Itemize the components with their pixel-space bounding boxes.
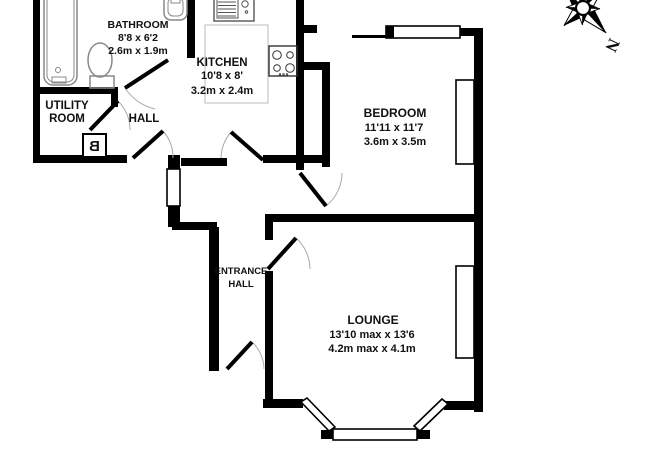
compass-rose-icon: N [546,0,625,55]
door-leaf [90,101,118,130]
door-front [227,342,264,369]
compass-north-label: N [601,36,624,56]
room-label-entrance-hall-line1: ENTRANCE [215,266,268,277]
wall-segment [265,214,273,240]
room-dims-bedroom-metric: 3.6m x 3.5m [364,136,427,148]
room-label-bedroom: BEDROOM [364,106,427,120]
room-dims-lounge-metric: 4.2m max x 4.1m [328,343,416,355]
wall-segment [33,155,127,163]
room-label-hall: HALL [129,113,160,125]
hob-icon [269,46,297,76]
floorplan-drawing: B [0,0,650,450]
room-labels: BATHROOM 8'8 x 6'2 2.6m x 1.9m UTILITY R… [45,19,426,355]
room-dims-bathroom-imperial: 8'8 x 6'2 [118,32,158,44]
wall-segment [302,25,317,33]
door-leaf [231,132,263,160]
door-leaf [133,131,163,158]
wall-segment [263,155,330,163]
wall-segment [168,155,180,170]
door-swing-arc [163,131,173,158]
door-bedroom [300,173,342,206]
door-leaf [300,173,326,206]
door-leaf [125,60,168,88]
room-label-entrance-hall-line2: HALL [228,279,254,290]
window-bay-left [301,398,335,431]
door-swing-arc [221,132,231,158]
door-swing-arc [125,88,155,109]
wall-segment [33,0,40,163]
walls [33,0,483,439]
wall-segment [444,401,483,410]
door-swing-arc [326,173,342,206]
room-label-utility-line1: UTILITY [45,100,89,112]
window-bay-right [414,399,448,431]
wall-segment [187,0,195,58]
boiler-icon: B [83,134,106,157]
floorplan-page: B [0,0,650,450]
fixtures: B [44,0,297,157]
wall-segment [209,227,219,371]
room-label-bathroom: BATHROOM [107,19,168,31]
wall-segment [322,62,330,167]
kitchen-sink-icon [214,0,254,21]
door-leaf [227,342,252,369]
boiler-label: B [89,138,100,155]
room-dims-kitchen-metric: 3.2m x 2.4m [191,85,254,97]
bathtub-icon [44,0,77,85]
room-dims-bedroom-imperial: 11'11 x 11'7 [365,122,423,134]
window-entrance-hall [167,169,180,206]
room-label-kitchen: KITCHEN [196,57,247,69]
room-dims-kitchen-imperial: 10'8 x 8' [201,70,243,82]
door-swing-arc [252,342,264,369]
window-bedroom-right [456,80,474,164]
door-hall-to-entrance [133,131,173,158]
door-utility [90,101,130,130]
room-dims-bathroom-metric: 2.6m x 1.9m [108,45,168,57]
room-label-utility-line2: ROOM [49,113,85,125]
door-kitchen [221,132,263,160]
wall-segment [263,399,303,408]
room-dims-lounge-imperial: 13'10 max x 13'6 [329,329,414,341]
door-leaf [268,238,296,269]
wash-basin-icon [164,0,187,20]
door-bathroom [125,60,168,109]
window-bedroom-top [386,26,460,38]
window-lounge-right [456,266,474,358]
door-swing-arc [296,238,310,269]
door-lounge [268,238,310,269]
window-bay-center [333,429,417,440]
window-cap [386,26,394,38]
wall-segment [265,214,477,222]
wall-segment [181,158,227,166]
room-label-lounge: LOUNGE [347,313,398,327]
wall-segment [265,271,273,405]
